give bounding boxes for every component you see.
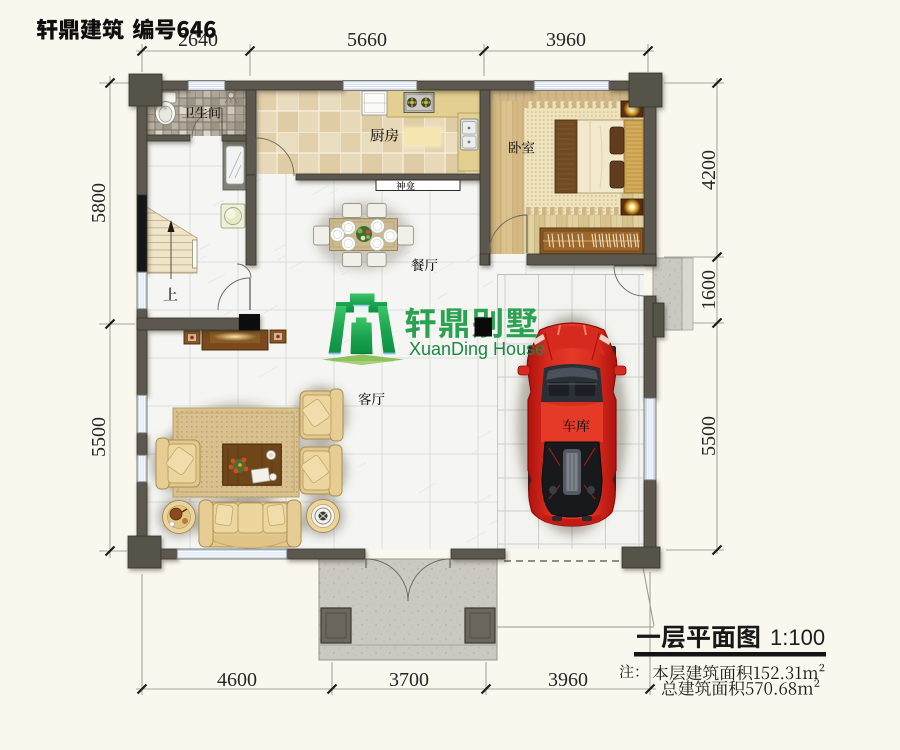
svg-text:1600: 1600 xyxy=(698,270,720,310)
svg-text:XuanDing House: XuanDing House xyxy=(409,339,545,359)
svg-text:5500: 5500 xyxy=(698,416,720,456)
svg-text:3960: 3960 xyxy=(548,669,588,691)
svg-text:4600: 4600 xyxy=(217,669,257,691)
svg-text:3700: 3700 xyxy=(389,669,429,691)
svg-text:5660: 5660 xyxy=(347,29,387,51)
svg-text:4200: 4200 xyxy=(698,150,720,190)
svg-text:1:100: 1:100 xyxy=(770,625,825,650)
svg-text:5500: 5500 xyxy=(88,417,110,457)
svg-text:5800: 5800 xyxy=(88,183,110,223)
svg-text:3960: 3960 xyxy=(546,29,586,51)
